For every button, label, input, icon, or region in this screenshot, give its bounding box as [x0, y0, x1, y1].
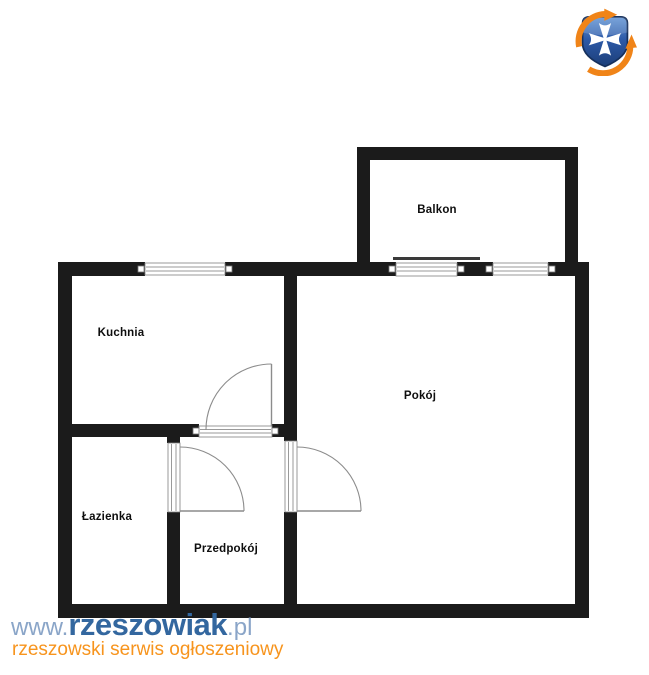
- balcony-door-symbol: [396, 263, 457, 276]
- doorway-end-cap: [193, 428, 199, 434]
- watermark-suffix: .pl: [227, 614, 252, 641]
- window-end-cap: [226, 266, 232, 272]
- window-end-cap: [549, 266, 555, 272]
- wall-segment: [357, 147, 370, 262]
- wall-segment: [225, 262, 396, 276]
- window-end-cap: [389, 266, 395, 272]
- doorway-end-cap: [272, 428, 278, 434]
- wall-segment: [565, 147, 578, 262]
- wall-segment: [167, 437, 180, 443]
- window-end-cap: [138, 266, 144, 272]
- wall-segment: [357, 147, 578, 160]
- watermark-tagline: rzeszowski serwis ogłoszeniowy: [12, 640, 283, 659]
- door-swing-arc: [180, 447, 244, 511]
- doorway-opening: [199, 426, 272, 437]
- room-label-lazienka: Łazienka: [82, 511, 132, 523]
- doorways-layer: [168, 426, 297, 512]
- logo-shield-cross-icon: [579, 9, 637, 74]
- wall-segment: [284, 512, 297, 604]
- walls-layer: [58, 147, 589, 618]
- window-symbol: [145, 263, 225, 275]
- doorway-opening: [285, 441, 297, 512]
- scanned-floorplan-image: Balkon Kuchnia Pokój Łazienka Przedpokój: [0, 0, 649, 675]
- wall-segment: [575, 262, 589, 618]
- watermark-brand: rzeszowiak: [68, 607, 227, 642]
- door-swing-arc: [206, 364, 272, 430]
- doorway-opening: [168, 443, 180, 512]
- wall-segment: [284, 276, 297, 441]
- room-label-przedpokoj: Przedpokój: [194, 543, 258, 555]
- door-swing-arc: [297, 447, 361, 511]
- wall-segment: [58, 262, 72, 618]
- room-label-pokoj: Pokój: [404, 390, 436, 402]
- window-end-cap: [458, 266, 464, 272]
- watermark-prefix: www.: [11, 614, 68, 641]
- room-label-kuchnia: Kuchnia: [98, 327, 145, 339]
- wall-segment: [72, 424, 199, 437]
- window-end-cap: [486, 266, 492, 272]
- door-swings-layer: [180, 364, 361, 511]
- window-symbol: [493, 263, 548, 275]
- room-label-balkon: Balkon: [417, 204, 457, 216]
- watermark-url: www.rzeszowiak.pl: [11, 609, 252, 640]
- balcony-threshold: [393, 257, 480, 260]
- site-logo: [571, 8, 639, 76]
- wall-segment: [167, 512, 180, 604]
